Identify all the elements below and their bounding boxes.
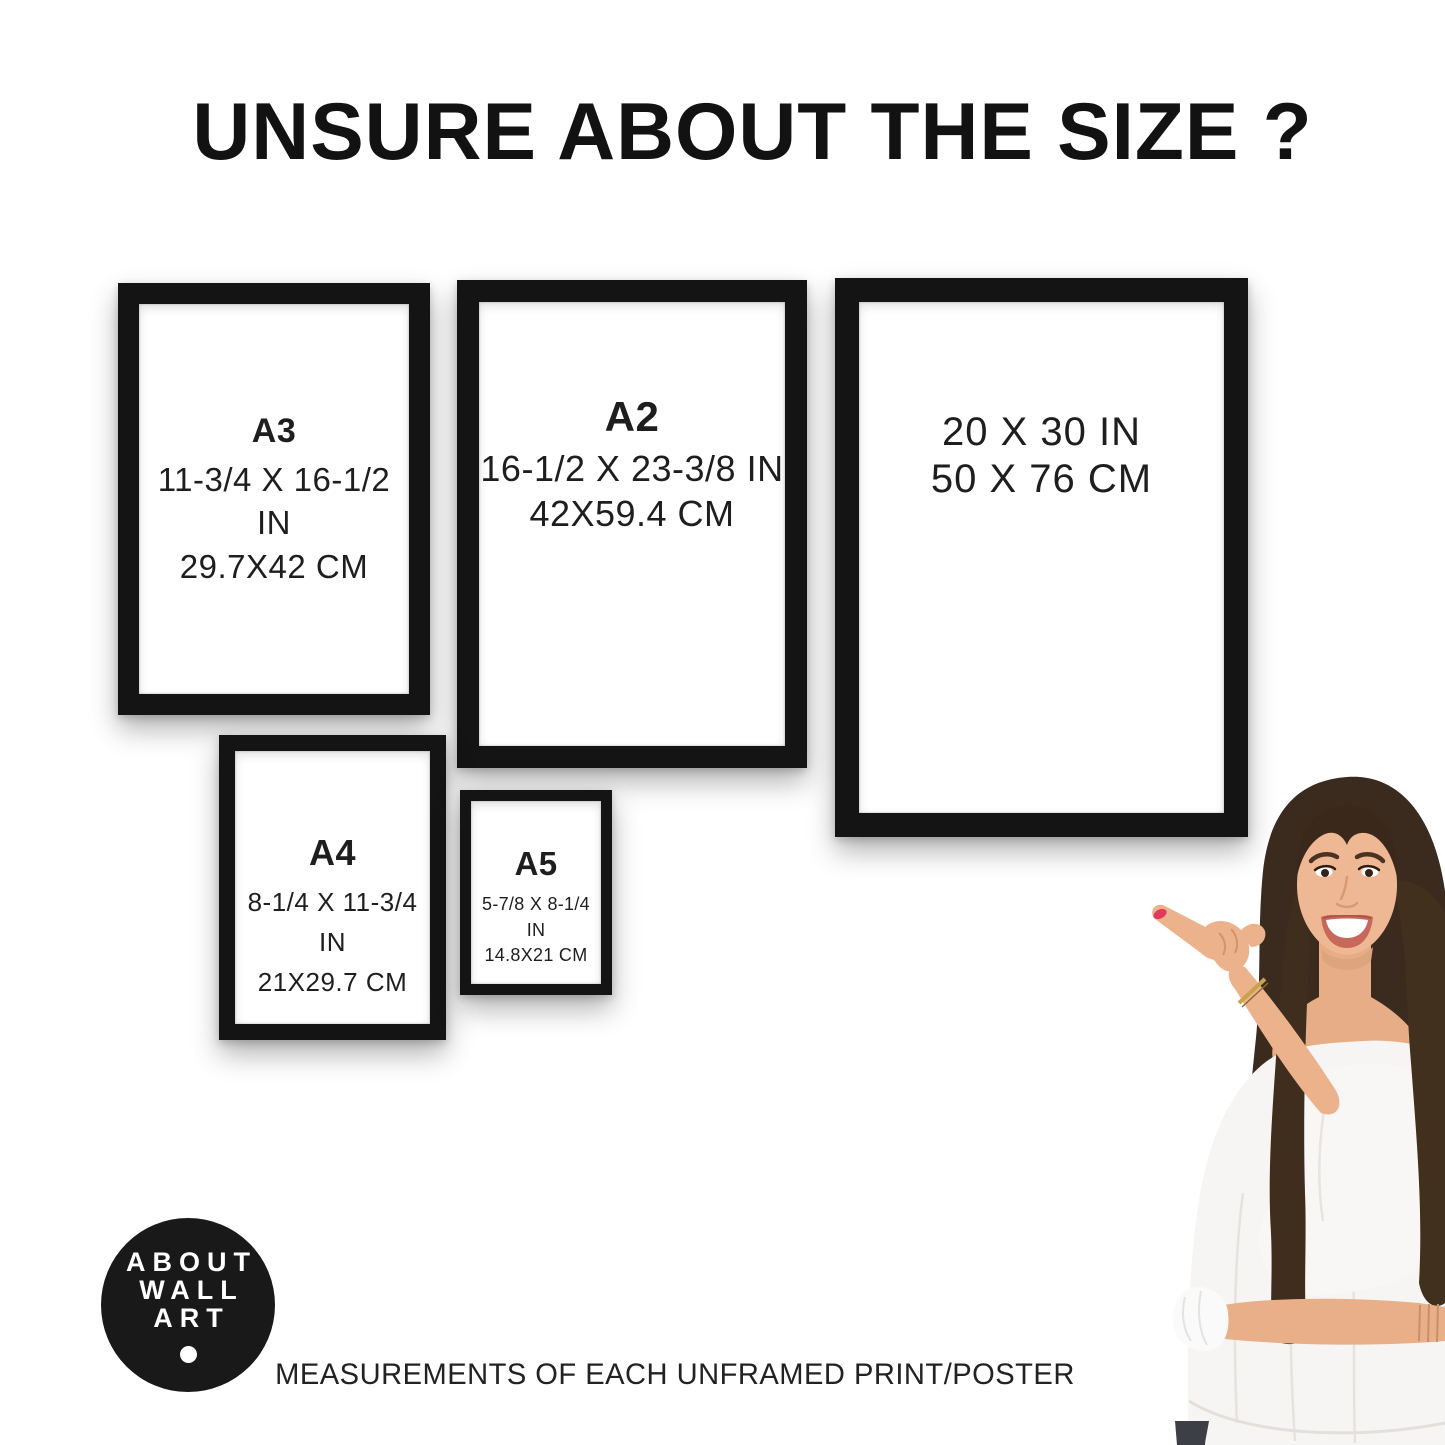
size-cm: 50 X 76 CM (859, 456, 1224, 502)
frame-mat: 20 X 30 IN 50 X 76 CM (859, 302, 1224, 813)
size-label: A5 (471, 841, 601, 888)
size-inches: 16-1/2 X 23-3/8 IN (479, 446, 785, 491)
size-label: A2 (479, 391, 785, 444)
size-cm: 14.8X21 CM (471, 943, 601, 969)
size-frame-a3: A3 11-3/4 X 16-1/2 IN 29.7X42 CM (118, 283, 430, 715)
frame-mat: A4 8-1/4 X 11-3/4 IN 21X29.7 CM (235, 751, 430, 1024)
size-frame-20x30: 20 X 30 IN 50 X 76 CM (835, 278, 1248, 837)
size-inches: 20 X 30 IN (859, 409, 1224, 455)
size-frame-a5: A5 5-7/8 X 8-1/4 IN 14.8X21 CM (460, 790, 612, 995)
crossed-forearm (1217, 1299, 1445, 1345)
pointing-woman-image (1123, 773, 1445, 1445)
brand-logo-line: WALL (132, 1276, 243, 1304)
iris-left (1321, 869, 1329, 877)
size-guide-page: UNSURE ABOUT THE SIZE ? A3 11-3/4 X 16-1… (0, 0, 1445, 1445)
brand-logo-line: ART (146, 1304, 230, 1332)
frame-size-text: A5 5-7/8 X 8-1/4 IN 14.8X21 CM (471, 841, 601, 969)
iris-right (1365, 869, 1373, 877)
frame-size-text: 20 X 30 IN 50 X 76 CM (859, 409, 1224, 502)
jeans (1175, 1421, 1209, 1445)
frame-size-text: A4 8-1/4 X 11-3/4 IN 21X29.7 CM (235, 825, 430, 1003)
frame-mat: A5 5-7/8 X 8-1/4 IN 14.8X21 CM (471, 801, 601, 984)
size-label: A3 (139, 409, 409, 454)
frame-size-text: A2 16-1/2 X 23-3/8 IN 42X59.4 CM (479, 391, 785, 537)
frame-mat: A3 11-3/4 X 16-1/2 IN 29.7X42 CM (139, 304, 409, 694)
page-title: UNSURE ABOUT THE SIZE ? (67, 86, 1438, 179)
size-inches: 11-3/4 X 16-1/2 IN (139, 458, 409, 546)
size-frame-a4: A4 8-1/4 X 11-3/4 IN 21X29.7 CM (219, 735, 446, 1040)
frame-mat: A2 16-1/2 X 23-3/8 IN 42X59.4 CM (479, 302, 785, 746)
brand-logo-line: ABOUT (119, 1248, 257, 1276)
size-cm: 29.7X42 CM (139, 545, 409, 589)
size-cm: 21X29.7 CM (235, 962, 430, 1002)
size-cm: 42X59.4 CM (479, 491, 785, 536)
size-frame-a2: A2 16-1/2 X 23-3/8 IN 42X59.4 CM (457, 280, 807, 768)
size-inches: 5-7/8 X 8-1/4 IN (471, 892, 601, 943)
size-inches: 8-1/4 X 11-3/4 IN (235, 882, 430, 963)
frame-size-text: A3 11-3/4 X 16-1/2 IN 29.7X42 CM (139, 409, 409, 589)
size-label: A4 (235, 825, 430, 881)
